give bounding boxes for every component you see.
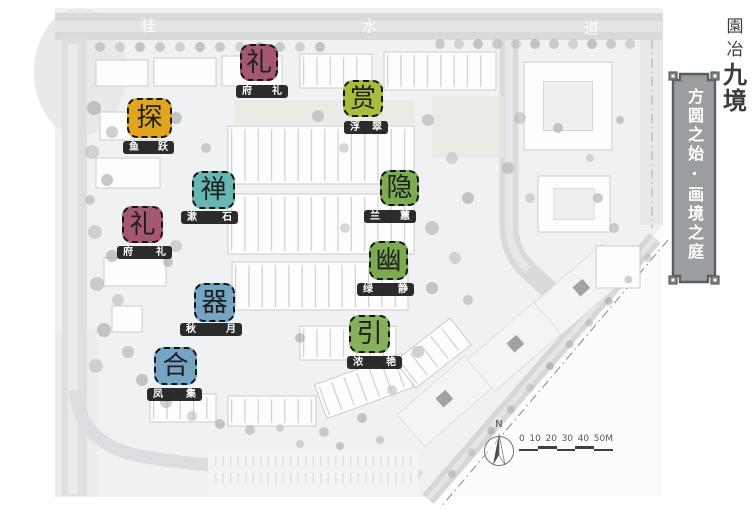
scale-tick: 40 bbox=[578, 434, 589, 444]
zone-label-char: 鱼 bbox=[129, 141, 139, 154]
zone-label-char: 绿 bbox=[363, 283, 373, 296]
zone-label-char: 秋 bbox=[186, 323, 196, 336]
zone-label-char: 浮 bbox=[350, 121, 360, 134]
zone-character: 隐 bbox=[386, 175, 412, 201]
road-name-2: 水 bbox=[362, 19, 377, 34]
zone-badge-li-west: 礼 bbox=[122, 206, 163, 243]
zone-label-char: 兰 bbox=[370, 210, 380, 223]
zone-badge-you: 幽 bbox=[369, 241, 408, 280]
zone-character: 引 bbox=[356, 321, 382, 347]
compass-icon bbox=[480, 431, 518, 469]
title-char: 九 bbox=[723, 62, 747, 88]
scale-tick: 20 bbox=[545, 434, 556, 444]
zone-label-he: 凤集 bbox=[147, 388, 202, 401]
zone-label-yin-lead: 浓艳 bbox=[347, 356, 402, 369]
compass: N bbox=[479, 419, 519, 473]
zone-character: 礼 bbox=[129, 212, 155, 238]
zone-label-yin-hide: 兰蕙 bbox=[364, 210, 416, 223]
zone-label-tan: 鱼跃 bbox=[123, 141, 174, 154]
zone-label-char: 礼 bbox=[272, 85, 282, 98]
zone-character: 器 bbox=[201, 290, 227, 316]
zone-label-char: 礼 bbox=[156, 246, 166, 259]
zone-character: 合 bbox=[162, 353, 188, 379]
scale-tick: 0 bbox=[519, 434, 525, 444]
zone-label-you: 绿静 bbox=[357, 283, 414, 296]
zone-label-char: 漱 bbox=[187, 211, 197, 224]
zone-label-char: 石 bbox=[222, 211, 232, 224]
zone-label-chan: 漱石 bbox=[181, 211, 238, 224]
masterplan-page: 桂 水 道 礼府礼赏浮翠探鱼跃禅漱石隐兰蕙礼府礼幽绿静器秋月引浓艳合凤集 N 0… bbox=[0, 0, 753, 513]
scale-bar-labels: 0 10 20 30 40 50M bbox=[519, 434, 613, 444]
zone-badge-tan: 探 bbox=[127, 98, 172, 138]
zone-badge-qi: 器 bbox=[194, 283, 235, 322]
zone-badge-he: 合 bbox=[154, 347, 197, 385]
zone-badge-yin-lead: 引 bbox=[349, 315, 390, 353]
zone-badge-shang: 赏 bbox=[343, 80, 383, 117]
project-title: 園 冶 九 境 bbox=[720, 16, 750, 114]
scale-tick: 10 bbox=[529, 434, 540, 444]
zone-character: 赏 bbox=[350, 86, 376, 112]
road-name-1: 桂 bbox=[141, 19, 156, 34]
zone-character: 禅 bbox=[200, 177, 226, 203]
title-char: 境 bbox=[723, 88, 747, 114]
scale-bar-segments bbox=[519, 446, 613, 451]
zone-character: 探 bbox=[136, 105, 162, 131]
zone-label-char: 翠 bbox=[372, 121, 382, 134]
scale-tick: 30 bbox=[562, 434, 573, 444]
zone-label-char: 凤 bbox=[153, 388, 163, 401]
theme-banner-text: 方圆之始·画境之庭 bbox=[682, 88, 706, 262]
zone-badge-li-north: 礼 bbox=[240, 44, 278, 81]
zone-label-char: 蕙 bbox=[400, 210, 410, 223]
zone-label-qi: 秋月 bbox=[180, 323, 242, 336]
scale-bar: 0 10 20 30 40 50M bbox=[519, 434, 613, 451]
zone-character: 礼 bbox=[246, 50, 272, 76]
zone-badge-yin-hide: 隐 bbox=[380, 170, 419, 206]
zone-label-char: 浓 bbox=[353, 356, 363, 369]
road-name-3: 道 bbox=[584, 21, 599, 36]
zone-label-char: 跃 bbox=[158, 141, 168, 154]
zone-label-char: 府 bbox=[123, 246, 133, 259]
zone-label-li-north: 府礼 bbox=[236, 85, 288, 98]
theme-banner: 方圆之始·画境之庭 bbox=[667, 70, 721, 286]
zone-label-shang: 浮翠 bbox=[344, 121, 388, 134]
scale-tick: 50M bbox=[594, 434, 613, 444]
title-char: 冶 bbox=[727, 39, 744, 62]
zone-label-char: 艳 bbox=[386, 356, 396, 369]
zone-label-li-west: 府礼 bbox=[117, 246, 172, 259]
zone-label-char: 月 bbox=[226, 323, 236, 336]
zone-label-char: 静 bbox=[398, 283, 408, 296]
compass-north-label: N bbox=[479, 419, 519, 430]
zone-badge-chan: 禅 bbox=[192, 171, 235, 209]
zone-character: 幽 bbox=[375, 248, 401, 274]
title-char: 園 bbox=[727, 16, 744, 39]
zone-label-char: 集 bbox=[186, 388, 196, 401]
zone-label-char: 府 bbox=[242, 85, 252, 98]
